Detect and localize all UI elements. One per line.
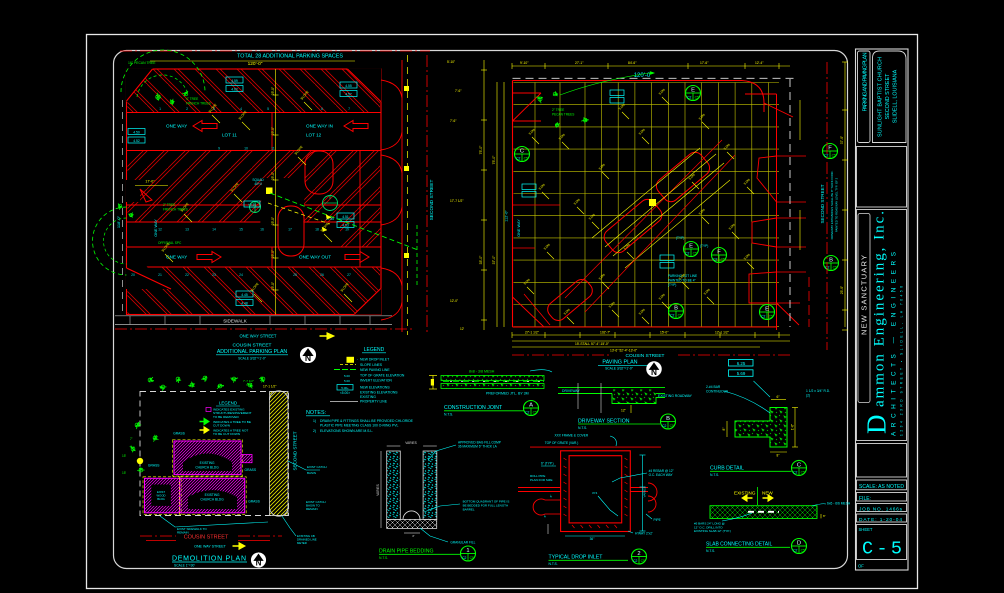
svg-text:(2): (2)	[806, 393, 810, 397]
svg-text:5.00+: 5.00+	[341, 386, 349, 390]
svg-text:COUSIN STREET: COUSIN STREET	[233, 343, 272, 349]
svg-text:6: 6	[321, 107, 323, 111]
svg-text:21: 21	[158, 273, 162, 277]
svg-text:14: 14	[212, 228, 216, 232]
svg-text:15'-0": 15'-0"	[660, 331, 669, 335]
svg-text:B: B	[666, 416, 670, 422]
svg-text:ONE WAY: ONE WAY	[166, 255, 187, 260]
svg-text:SLIDELL, LOUISIANA: SLIDELL, LOUISIANA	[893, 69, 899, 123]
svg-text:1'-6": 1'-6"	[791, 424, 795, 430]
svg-text:10: 10	[244, 147, 248, 151]
svg-text:25'-0": 25'-0"	[271, 172, 275, 180]
svg-text:18: 18	[315, 228, 319, 232]
svg-text:C5: C5	[533, 411, 537, 415]
svg-text:6": 6"	[549, 495, 553, 498]
svg-text:CUT DOWN: CUT DOWN	[213, 424, 230, 428]
svg-text:ONE WAY STREET: ONE WAY STREET	[240, 334, 277, 339]
svg-text:25'-0": 25'-0"	[271, 250, 275, 258]
svg-text:35'-0": 35'-0"	[479, 255, 483, 264]
svg-text:120'-0": 120'-0"	[248, 61, 263, 67]
svg-text:C5: C5	[693, 252, 697, 256]
svg-text:5.00: 5.00	[344, 374, 350, 378]
svg-text:C5: C5	[678, 314, 682, 318]
svg-text:C5: C5	[524, 157, 528, 161]
svg-text:PLAN FOR SIZE: PLAN FOR SIZE	[530, 478, 553, 482]
svg-text:15: 15	[239, 228, 243, 232]
svg-text:25'-0": 25'-0"	[840, 285, 844, 294]
svg-text:7: 7	[348, 107, 350, 111]
svg-text:GRASS: GRASS	[248, 500, 260, 504]
svg-text:12'-1 1/2": 12'-1 1/2"	[715, 331, 730, 335]
svg-text:24: 24	[239, 273, 243, 277]
svg-text:2: 2	[186, 107, 188, 111]
svg-text:BASIN: BASIN	[307, 471, 316, 475]
svg-text:GRASS: GRASS	[245, 468, 257, 472]
svg-text:PECAN TREES: PECAN TREES	[552, 113, 574, 117]
svg-text:19: 19	[345, 228, 349, 232]
svg-text:C5: C5	[769, 315, 773, 319]
svg-text:TOTAL 28 ADDITIONAL PARKING SP: TOTAL 28 ADDITIONAL PARKING SPACES	[237, 54, 343, 60]
svg-text:OF: OF	[858, 564, 864, 569]
svg-text:E: E	[691, 88, 695, 94]
svg-text:N: N	[256, 559, 262, 568]
svg-text:5.69: 5.69	[737, 371, 746, 376]
svg-text:D: D	[797, 541, 801, 547]
svg-text:DRIVEWAY SECTION: DRIVEWAY SECTION	[578, 418, 630, 424]
svg-text:6": 6"	[543, 515, 547, 518]
svg-text:4.59: 4.59	[231, 79, 238, 83]
svg-text:METER: METER	[297, 541, 307, 545]
svg-text:NEW ELEVATIONS: NEW ELEVATIONS	[360, 386, 390, 390]
svg-text:7'-6": 7'-6"	[455, 89, 461, 93]
svg-text:REMAIN: REMAIN	[306, 507, 318, 511]
svg-text:2: 2	[637, 551, 640, 557]
svg-text:112'-0": 112'-0"	[505, 210, 509, 222]
svg-text:C2: C2	[670, 314, 674, 318]
svg-text:(TYP): (TYP)	[700, 244, 708, 248]
svg-text:25'-0": 25'-0"	[271, 127, 275, 135]
svg-text:E: E	[689, 244, 693, 250]
svg-text:4.57: 4.57	[345, 92, 352, 96]
svg-text:VARIES: VARIES	[376, 484, 380, 495]
svg-text:TYPICAL DROP INLET: TYPICAL DROP INLET	[549, 555, 604, 561]
svg-text:VARIES: VARIES	[405, 441, 416, 445]
svg-text:C2: C2	[525, 411, 529, 415]
svg-text:12": 12"	[621, 409, 627, 413]
svg-text:DRIVEWAY: DRIVEWAY	[562, 389, 580, 393]
svg-text:XXX FRAME & COVER: XXX FRAME & COVER	[555, 434, 589, 438]
svg-text:-: -	[357, 358, 358, 362]
svg-text:LOT 11: LOT 11	[222, 133, 237, 138]
svg-text:EXISTING ROADWAY: EXISTING ROADWAY	[658, 394, 693, 398]
svg-text:8x8 - 3/8 MESH: 8x8 - 3/8 MESH	[469, 370, 495, 374]
svg-text:16: 16	[260, 228, 264, 232]
svg-text:C5: C5	[801, 470, 805, 474]
svg-text:13'-6" 52'-4"-13'-0": 13'-6" 52'-4"-13'-0"	[610, 349, 638, 353]
svg-text:H'WAY 2'x2': H'WAY 2'x2'	[635, 532, 653, 536]
svg-text:12'-0": 12'-0"	[450, 299, 458, 303]
svg-text:GRANULAR FILL: GRANULAR FILL	[450, 540, 475, 544]
svg-text:COUSIN STREET: COUSIN STREET	[626, 353, 665, 359]
svg-text:118'-0": 118'-0"	[116, 215, 121, 228]
svg-text:PARKING AND PAVING PLAN: PARKING AND PAVING PLAN	[863, 53, 869, 112]
svg-text:SHEET: SHEET	[859, 527, 873, 532]
svg-text:EXIST CATCH: EXIST CATCH	[307, 465, 327, 469]
svg-text:C2: C2	[793, 470, 797, 474]
svg-text:4" TREE: 4" TREE	[186, 97, 198, 101]
svg-text:4.50: 4.50	[133, 130, 140, 134]
svg-text:TO BE REMOVED: TO BE REMOVED	[213, 415, 239, 419]
svg-text:C2: C2	[516, 157, 520, 161]
svg-text:1): 1)	[313, 419, 316, 423]
svg-text:4": 4"	[412, 534, 415, 538]
svg-text:37'-0": 37'-0"	[840, 135, 844, 144]
svg-text:SLAB CONNECTING DETAIL: SLAB CONNECTING DETAIL	[706, 542, 773, 548]
svg-text:25'-0": 25'-0"	[271, 87, 275, 95]
svg-text:F: F	[717, 250, 721, 256]
svg-text:36 MAXIMUM 6" THICK LA: 36 MAXIMUM 6" THICK LA	[458, 445, 498, 449]
svg-text:EXISTING: EXISTING	[205, 493, 220, 497]
svg-text:4.52: 4.52	[133, 139, 140, 143]
svg-text:C-5: C-5	[862, 539, 902, 560]
svg-text:ONE WAY OUT: ONE WAY OUT	[299, 255, 331, 260]
svg-text:C2: C2	[713, 258, 717, 262]
svg-text:C2: C2	[761, 315, 765, 319]
svg-text:EXISTING ELEVATIONS: EXISTING ELEVATIONS	[360, 391, 398, 395]
svg-text:4.45: 4.45	[241, 293, 248, 297]
svg-text:17'-1 1/2": 17'-1 1/2"	[263, 385, 276, 389]
svg-text:C: C	[520, 149, 524, 155]
svg-text:7': 7'	[130, 437, 133, 441]
svg-text:27: 27	[347, 273, 351, 277]
svg-text:7'-7 1/2": 7'-7 1/2"	[243, 379, 254, 383]
svg-text:27'-1 1/2": 27'-1 1/2"	[525, 331, 540, 335]
svg-text:17'-6": 17'-6"	[700, 61, 709, 65]
svg-text:NEW PAVING LINE: NEW PAVING LINE	[360, 368, 390, 372]
svg-text:5.00: 5.00	[344, 379, 350, 383]
svg-text:17'-0": 17'-0"	[145, 180, 155, 184]
svg-text:EXISTING: EXISTING	[360, 395, 376, 399]
svg-text:DEMOLITION PLAN: DEMOLITION PLAN	[172, 556, 246, 563]
svg-text:EXISTING: EXISTING	[200, 461, 215, 465]
svg-text:ONE WAY IN: ONE WAY IN	[306, 124, 333, 129]
svg-text:+0.34: +0.34	[248, 203, 256, 207]
svg-text:NEW DROP INLET: NEW DROP INLET	[360, 358, 389, 362]
svg-text:C5: C5	[801, 549, 805, 553]
svg-text:EXISTING SLAB 12" (TYP.): EXISTING SLAB 12" (TYP.)	[694, 529, 731, 533]
svg-text:6": 6"	[823, 514, 826, 518]
svg-text:4.62: 4.62	[231, 87, 238, 91]
svg-text:40+4: 40+4	[254, 182, 261, 186]
svg-text:COUSIN STREET: COUSIN STREET	[184, 535, 229, 541]
svg-text:N.T.S.: N.T.S.	[444, 413, 453, 417]
svg-text:<5.00>: <5.00>	[340, 391, 350, 395]
svg-text:SIDEWALK: SIDEWALK	[223, 319, 248, 324]
svg-text:D: D	[862, 415, 892, 435]
svg-text:C2: C2	[462, 556, 466, 560]
svg-text:5: 5	[267, 107, 269, 111]
svg-text:N.T.S.: N.T.S.	[379, 556, 388, 560]
svg-text:15': 15'	[122, 454, 127, 458]
svg-text:4.53: 4.53	[342, 223, 349, 227]
svg-text:2" TREE: 2" TREE	[163, 203, 175, 207]
svg-text:N.T.S.: N.T.S.	[706, 549, 715, 553]
svg-text:JOB NO. 1466s: JOB NO. 1466s	[859, 507, 903, 513]
svg-text:1: 1	[159, 107, 161, 111]
svg-text:CHURCH BLDG: CHURCH BLDG	[195, 465, 219, 469]
svg-text:BARREL: BARREL	[463, 507, 475, 511]
svg-text:GRASS: GRASS	[148, 464, 160, 468]
svg-text:9: 9	[218, 147, 220, 151]
svg-text:TOP OF GRATE ELEVATION: TOP OF GRATE ELEVATION	[360, 374, 405, 378]
svg-text:SCALE 3/32"=1'-0": SCALE 3/32"=1'-0"	[605, 366, 634, 370]
svg-text:C2: C2	[685, 252, 689, 256]
svg-text:C5: C5	[470, 556, 474, 560]
svg-text:4: 4	[240, 107, 242, 111]
svg-text:22: 22	[185, 273, 189, 277]
svg-text:PAINTED TO ROADWAY LEVEL TYP.: PAINTED TO ROADWAY LEVEL TYP. OF 3	[835, 177, 839, 232]
svg-text:SECOND STREET: SECOND STREET	[885, 73, 891, 120]
svg-text:ONE WAY: ONE WAY	[166, 124, 187, 129]
svg-text:6" (TYP.): 6" (TYP.)	[541, 462, 554, 466]
svg-text:5'-10": 5'-10"	[447, 60, 455, 64]
svg-text:DRAIN PIPE BEDDING: DRAIN PIPE BEDDING	[379, 549, 433, 555]
svg-text:F: F	[828, 146, 832, 152]
svg-text:75'-0": 75'-0"	[492, 155, 496, 164]
svg-text:CONSTRUCTION JOINT: CONSTRUCTION JOINT	[444, 405, 503, 411]
svg-text:C: C	[797, 462, 801, 468]
svg-text:15': 15'	[122, 471, 127, 475]
svg-text:NEW SANCTUARY: NEW SANCTUARY	[860, 255, 869, 335]
svg-text:23: 23	[212, 273, 216, 277]
svg-text:12'-4": 12'-4"	[755, 61, 764, 65]
svg-text:6.25: 6.25	[737, 361, 746, 366]
svg-text:C2: C2	[662, 424, 666, 428]
svg-text:102'-7": 102'-7"	[600, 331, 611, 335]
svg-text:SUNLIGHT BAPTIST CHURCH: SUNLIGHT BAPTIST CHURCH	[878, 57, 884, 137]
svg-text:TOP OF GRATE (VAR.): TOP OF GRATE (VAR.)	[545, 441, 579, 445]
svg-text:B: B	[674, 306, 678, 312]
svg-text:SQUAD: SQUAD	[252, 178, 264, 182]
svg-text:C5: C5	[641, 559, 645, 563]
svg-text:4.51: 4.51	[342, 215, 349, 219]
svg-text:2" TREE: 2" TREE	[552, 108, 564, 112]
svg-text:B: B	[829, 258, 833, 264]
svg-text:GRASS: GRASS	[173, 431, 185, 435]
svg-text:11: 11	[271, 147, 275, 151]
svg-text:36": 36"	[590, 537, 595, 541]
svg-text:12: 12	[158, 228, 162, 232]
svg-text:N: N	[305, 353, 311, 363]
svg-text:CURB DETAIL: CURB DETAIL	[710, 466, 744, 472]
svg-text:PIPE: PIPE	[654, 518, 661, 522]
svg-text:FRENCH TREES: FRENCH TREES	[186, 102, 211, 106]
svg-text:26: 26	[320, 273, 324, 277]
svg-text:N: N	[651, 368, 657, 377]
svg-text:C5: C5	[721, 258, 725, 262]
svg-text:3Y4: 3Y4	[592, 491, 598, 495]
svg-text:O.C. EACH WAY: O.C. EACH WAY	[649, 473, 674, 477]
svg-text:LEGEND: LEGEND	[219, 401, 237, 406]
svg-text:ONE WAY: ONE WAY	[517, 219, 521, 237]
svg-text:PREFORMED JTL. BY 3M: PREFORMED JTL. BY 3M	[486, 392, 529, 396]
svg-text:(TYP): (TYP)	[676, 236, 684, 240]
svg-text:1: 1	[466, 548, 469, 554]
svg-text:9'-10": 9'-10"	[520, 61, 529, 65]
svg-text:SECOND STREET: SECOND STREET	[820, 184, 825, 223]
svg-text:ADDITIONAL PARKING PLAN: ADDITIONAL PARKING PLAN	[217, 349, 288, 355]
svg-text:C2: C2	[687, 96, 691, 100]
svg-text:(TYP): (TYP)	[668, 283, 676, 287]
svg-text:C5: C5	[670, 424, 674, 428]
svg-text:15'-STALL 57'-4"-15'-0": 15'-STALL 57'-4"-15'-0"	[575, 342, 610, 346]
svg-text:17: 17	[288, 228, 292, 232]
svg-text:27'-1": 27'-1"	[575, 61, 584, 65]
svg-text:PLASTIC PIPE MEETING CLASS 100: PLASTIC PIPE MEETING CLASS 100 O-RING PV…	[320, 424, 398, 428]
svg-text:C5: C5	[833, 266, 837, 270]
svg-text:ONE WAY: ONE WAY	[154, 219, 158, 237]
svg-text:ARCHITECTS — ENGINEERS: ARCHITECTS — ENGINEERS	[891, 252, 898, 436]
svg-text:DRIVEWAY ENTRANCES SHALL BE 8": DRIVEWAY ENTRANCES SHALL BE 8" THICK CON…	[830, 170, 834, 239]
svg-text:SCALE 1"=30': SCALE 1"=30'	[174, 564, 195, 568]
svg-text:8": 8"	[777, 454, 780, 458]
svg-text:37'-0": 37'-0"	[492, 255, 496, 264]
svg-text:C2: C2	[824, 154, 828, 158]
svg-text:EXISTING: EXISTING	[734, 491, 756, 496]
svg-text:NOTES:: NOTES:	[306, 410, 326, 416]
svg-text:DRAIN PIPE & FITTINGS SHALL BE: DRAIN PIPE & FITTINGS SHALL BE PROVIDED …	[320, 419, 414, 423]
svg-text:ELEVATIONS SHOWN ARE M.S.L.: ELEVATIONS SHOWN ARE M.S.L.	[320, 429, 373, 433]
svg-text:8": 8"	[722, 428, 726, 431]
svg-text:C2: C2	[793, 549, 797, 553]
svg-text:17'-7 1/2": 17'-7 1/2"	[450, 199, 463, 203]
svg-text:12': 12'	[460, 327, 465, 331]
svg-text:VARIES: VARIES	[643, 487, 647, 498]
svg-text:6x6 - 6/6 MESH: 6x6 - 6/6 MESH	[827, 502, 851, 506]
svg-text:ammon Engineering, Inc.: ammon Engineering, Inc.	[872, 211, 888, 407]
svg-text:4.48: 4.48	[241, 301, 248, 305]
svg-text:PAVING PLAN: PAVING PLAN	[602, 360, 637, 366]
svg-text:SECOND STREET: SECOND STREET	[429, 180, 435, 221]
svg-text:C5: C5	[832, 154, 836, 158]
svg-text:13: 13	[185, 228, 189, 232]
svg-text:2): 2)	[313, 429, 316, 433]
svg-text:C2: C2	[633, 559, 637, 563]
svg-text:FILE:: FILE:	[859, 496, 871, 502]
svg-text:TO BE CUT DOWN: TO BE CUT DOWN	[213, 432, 240, 436]
svg-text:N.T.S.: N.T.S.	[549, 562, 558, 566]
svg-text:SCALE 3/32"=1'-0": SCALE 3/32"=1'-0"	[238, 357, 267, 361]
svg-text:LEGEND: LEGEND	[364, 347, 385, 353]
svg-text:CHURCH BLDG: CHURCH BLDG	[200, 497, 224, 501]
svg-text:LOT 12: LOT 12	[306, 133, 322, 138]
svg-text:BLDG: BLDG	[157, 497, 165, 501]
svg-text:25'-0": 25'-0"	[271, 217, 275, 225]
svg-text:SCALE: AS NOTED: SCALE: AS NOTED	[859, 484, 904, 490]
svg-text:E: E	[765, 307, 769, 313]
svg-text:7'-6": 7'-6"	[450, 119, 456, 123]
svg-text:SLOPE LINES: SLOPE LINES	[360, 363, 383, 367]
svg-text:DATE: 1-20-04: DATE: 1-20-04	[859, 517, 902, 523]
svg-text:N.T.S.: N.T.S.	[710, 473, 719, 477]
svg-text:N.T.S.: N.T.S.	[578, 426, 587, 430]
svg-text:84'-6": 84'-6"	[628, 61, 637, 65]
svg-text:75'-0": 75'-0"	[479, 145, 483, 154]
svg-text:C5: C5	[695, 96, 699, 100]
svg-text:120'-0": 120'-0"	[634, 73, 653, 79]
svg-text:ONE WAY STREET: ONE WAY STREET	[194, 544, 226, 548]
svg-text:A: A	[529, 403, 533, 409]
svg-text:4.55: 4.55	[345, 84, 352, 88]
svg-text:PROPERTY LINE: PROPERTY LINE	[360, 400, 388, 404]
svg-text:25: 25	[293, 273, 297, 277]
svg-text:INVERT ELEVATION: INVERT ELEVATION	[360, 379, 392, 383]
svg-text:20: 20	[131, 273, 135, 277]
svg-text:25'-0": 25'-0"	[271, 282, 275, 290]
